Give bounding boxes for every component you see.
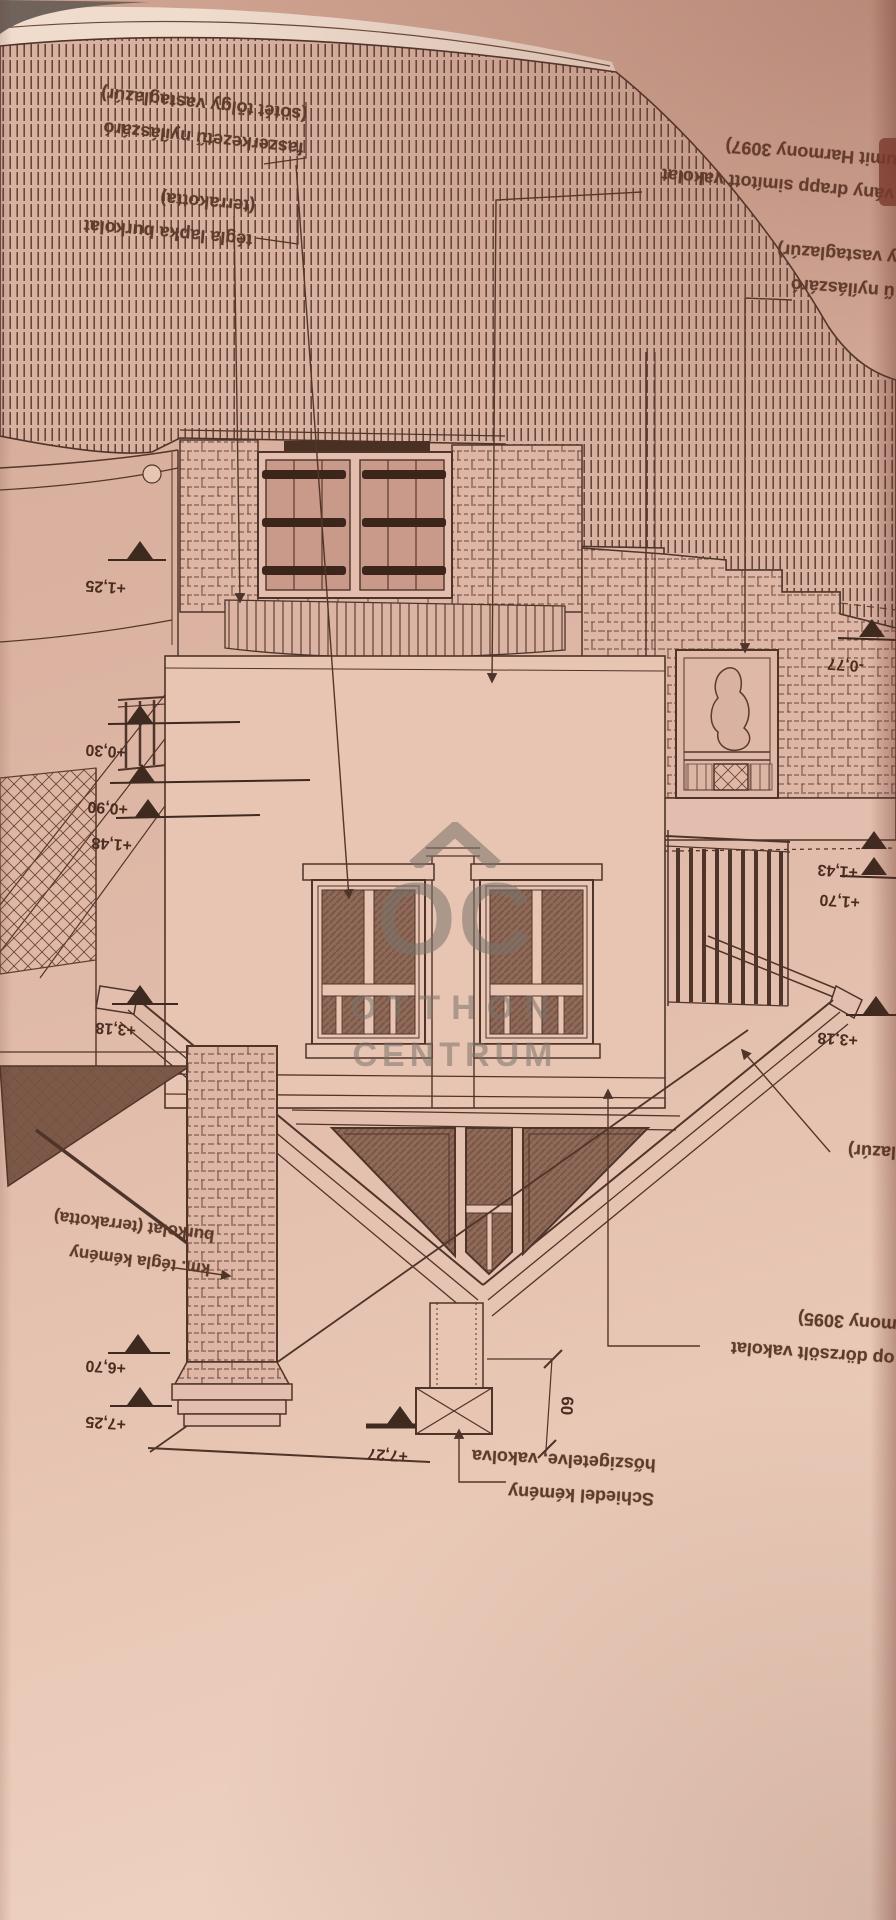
svg-text:+0,90: +0,90: [87, 798, 129, 818]
dormer-window-left: [303, 864, 434, 1058]
right-slat-railing: [666, 830, 790, 1006]
svg-text:+6,70: +6,70: [85, 1357, 127, 1377]
dormer-window-right: [471, 864, 602, 1058]
figure-window: [676, 650, 778, 798]
svg-text:+1,48: +1,48: [91, 834, 133, 854]
balcony-door: [258, 441, 452, 598]
svg-text:-0,77: -0,77: [827, 655, 865, 675]
label-glaze-partial: lazúr): [823, 1132, 896, 1170]
elevation-marker: +7,25: [85, 1387, 172, 1432]
label-line: lazúr): [823, 1132, 896, 1170]
svg-text:+7,25: +7,25: [85, 1413, 127, 1433]
gable-glazing-left: [332, 1128, 455, 1256]
svg-text:+3,18: +3,18: [95, 1019, 137, 1039]
elevation-marker: +1,25: [85, 541, 166, 596]
svg-text:+1,25: +1,25: [85, 577, 127, 597]
elevation-marker: +6,70: [85, 1334, 170, 1376]
photographed-drawing: 60 +1,25 +0,30 +0,90 +1,48 -0,77 +1,43 +…: [0, 0, 896, 1920]
label-right-window: ű nyílászáró y vastaglazúr): [742, 231, 896, 309]
label-schiedel: Schiedel kémény hőszigetelve, vakolva: [408, 1436, 656, 1517]
svg-text:+0,30: +0,30: [85, 741, 127, 761]
svg-text:+7,27: +7,27: [367, 1445, 409, 1465]
trellis-lattice: [0, 768, 96, 1066]
svg-text:+1,70: +1,70: [819, 891, 861, 911]
dimension-60-value: 60: [557, 1396, 577, 1416]
elevation-marker: +7,27: [366, 1406, 416, 1464]
gable-glazing-right: [523, 1128, 648, 1254]
svg-text:+3,18: +3,18: [817, 1029, 859, 1049]
schiedel-chimney: [416, 1303, 492, 1434]
